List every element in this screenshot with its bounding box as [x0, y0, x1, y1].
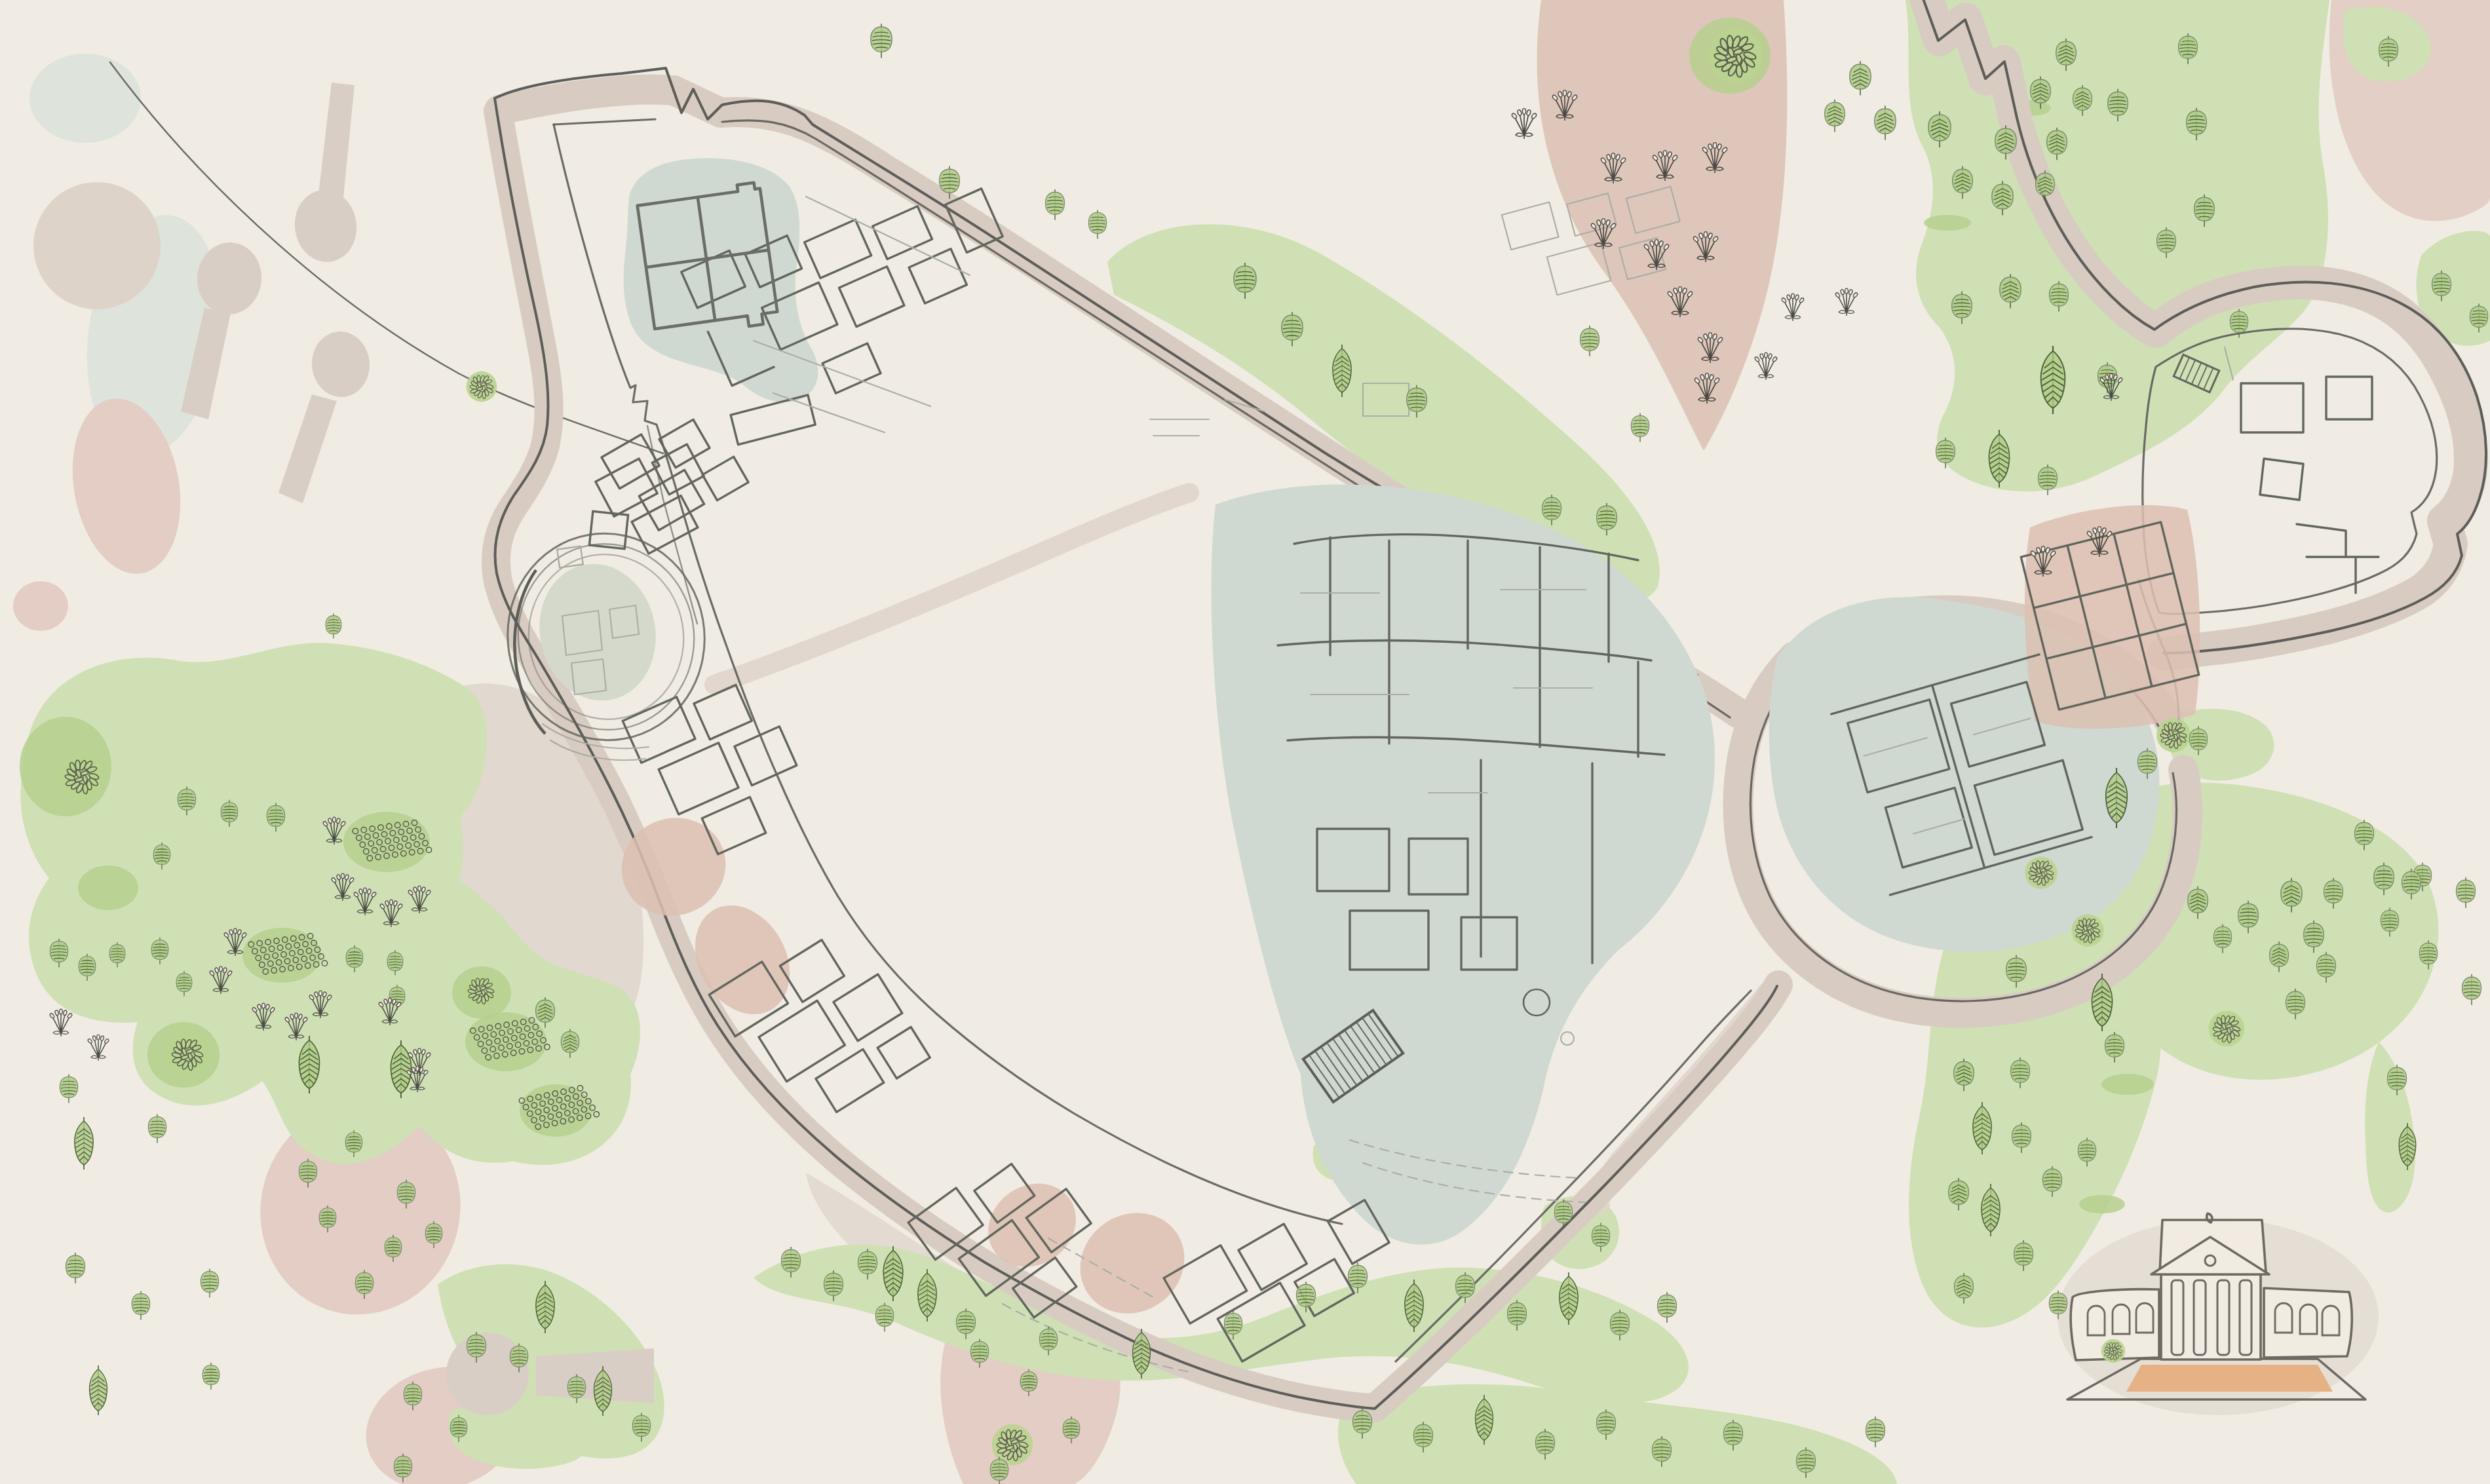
- terrain-tan-blob: [33, 182, 161, 309]
- bush-icon: [2025, 856, 2057, 888]
- pink-meadow-west-small: [13, 581, 68, 631]
- bush-icon: [2071, 914, 2103, 946]
- site-map-canvas: [0, 0, 2490, 1484]
- bush-icon: [464, 974, 498, 1008]
- terrain-sage-blob-corner: [29, 54, 141, 143]
- bush-icon: [2156, 718, 2191, 752]
- bush-icon: [2209, 1011, 2245, 1047]
- bush-icon: [60, 754, 104, 799]
- bush-icon: [167, 1034, 208, 1075]
- bush-icon: [467, 371, 497, 402]
- stone-outcrop-icon: [446, 1333, 529, 1415]
- bush-icon: [992, 1424, 1033, 1465]
- site-map: [0, 0, 2490, 1484]
- bush-icon: [1708, 28, 1762, 83]
- bush-icon: [2101, 1339, 2125, 1363]
- museum-plaza-inner: [2126, 1365, 2333, 1392]
